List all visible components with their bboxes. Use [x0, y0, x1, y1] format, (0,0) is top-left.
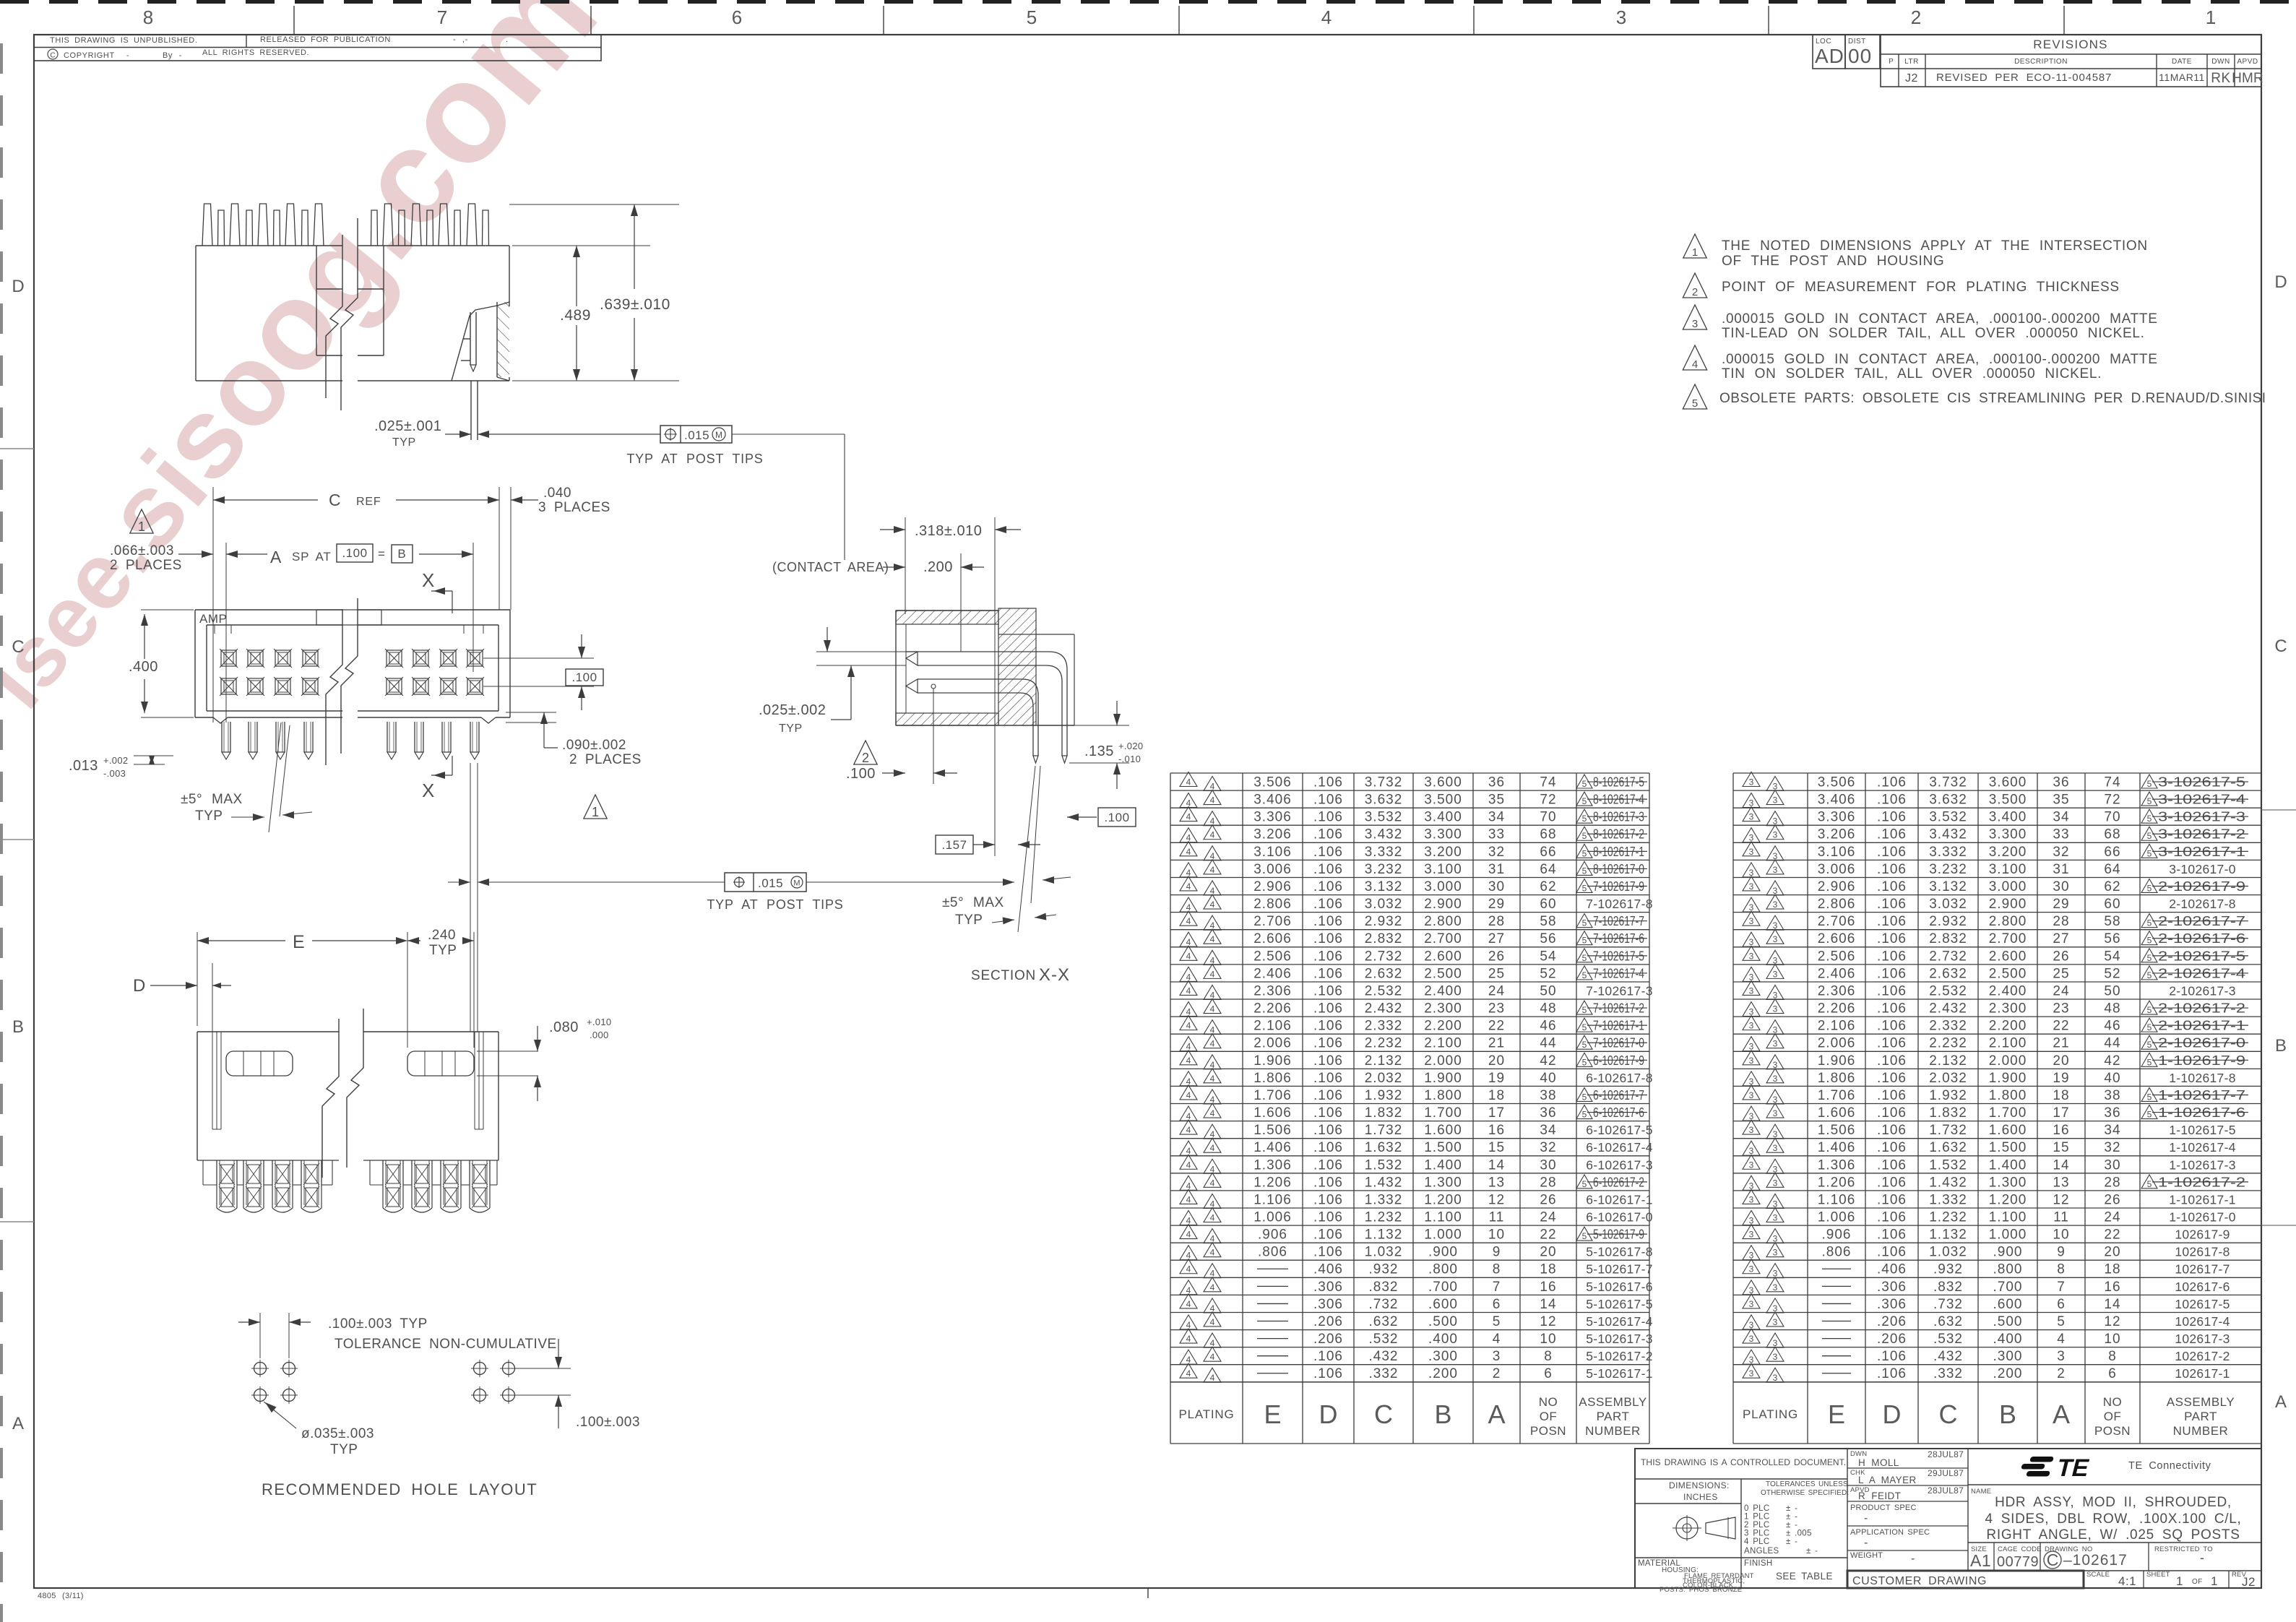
svg-text:C: C — [1939, 1399, 1958, 1429]
svg-text:POSN: POSN — [1530, 1424, 1566, 1438]
svg-text:5: 5 — [2147, 1022, 2152, 1032]
svg-text:1.806: 1.806 — [1253, 1071, 1292, 1086]
svg-text:RIGHT ANGLE, W/ .025 SQ POSTS: RIGHT ANGLE, W/ .025 SQ POSTS — [1986, 1527, 2240, 1543]
svg-text:3: 3 — [1773, 865, 1778, 875]
svg-text:.106: .106 — [1313, 1366, 1343, 1381]
svg-text:DIMENSIONS:: DIMENSIONS: — [1669, 1480, 1730, 1491]
svg-text:COPYRIGHT: COPYRIGHT — [64, 51, 115, 60]
svg-text:C: C — [2274, 637, 2287, 656]
svg-text:3: 3 — [1773, 795, 1778, 806]
svg-text:4: 4 — [1321, 7, 1332, 28]
svg-text:.906: .906 — [1822, 1228, 1852, 1243]
svg-text:.106: .106 — [1313, 1105, 1343, 1121]
svg-text:32: 32 — [2104, 1140, 2120, 1155]
svg-text:2: 2 — [2057, 1366, 2066, 1381]
svg-text:26: 26 — [1540, 1192, 1556, 1207]
svg-text:5: 5 — [1582, 1110, 1587, 1120]
svg-text:OTHERWISE SPECIFIED:: OTHERWISE SPECIFIED: — [1761, 1489, 1849, 1497]
svg-text:3: 3 — [1493, 1349, 1501, 1364]
svg-text:2 PLACES: 2 PLACES — [110, 558, 182, 573]
svg-text:2.206: 2.206 — [1818, 1001, 1856, 1017]
svg-text:J2: J2 — [2242, 1575, 2256, 1589]
svg-text:-: - — [1864, 1537, 1868, 1549]
svg-text:4: 4 — [1210, 1074, 1215, 1084]
svg-text:.106: .106 — [1313, 1175, 1343, 1190]
svg-text:1.200: 1.200 — [1424, 1192, 1462, 1207]
svg-text:102617-9: 102617-9 — [2175, 1228, 2230, 1242]
svg-text:OF: OF — [2104, 1410, 2122, 1423]
svg-text:2.132: 2.132 — [1365, 1053, 1403, 1069]
svg-text:3: 3 — [1749, 777, 1754, 788]
svg-text:4: 4 — [1210, 1178, 1215, 1188]
svg-text:.100±.003 TYP: .100±.003 TYP — [328, 1316, 428, 1332]
svg-text:4: 4 — [1186, 1160, 1191, 1170]
svg-text:.106: .106 — [1313, 1123, 1343, 1138]
svg-text:27: 27 — [2053, 931, 2069, 946]
svg-text:20: 20 — [2053, 1053, 2069, 1069]
svg-text:.332: .332 — [1369, 1366, 1399, 1381]
svg-text:2.832: 2.832 — [1929, 931, 1967, 946]
svg-text:3: 3 — [1749, 951, 1754, 961]
svg-text:2: 2 — [1493, 1366, 1501, 1381]
svg-text:5: 5 — [1582, 796, 1587, 806]
svg-text:5: 5 — [1582, 779, 1587, 789]
svg-text:5: 5 — [2147, 796, 2152, 806]
svg-text:3: 3 — [1749, 1125, 1754, 1135]
svg-text:MAX: MAX — [973, 895, 1004, 910]
svg-text:3.732: 3.732 — [1365, 775, 1403, 790]
svg-text:1.000: 1.000 — [1989, 1228, 2027, 1243]
svg-text:3.500: 3.500 — [1989, 793, 2027, 808]
svg-text:2.606: 2.606 — [1253, 931, 1292, 946]
svg-text:6-102617-8: 6-102617-8 — [1586, 1071, 1653, 1085]
svg-text:2.200: 2.200 — [1424, 1019, 1462, 1034]
svg-text:-: - — [1864, 1512, 1868, 1524]
svg-text:.106: .106 — [1313, 1140, 1343, 1155]
svg-text:- ,-: - ,- — [453, 35, 468, 44]
svg-text:102617-3: 102617-3 — [2175, 1332, 2230, 1346]
svg-text:.806: .806 — [1258, 1245, 1287, 1260]
svg-text:68: 68 — [2104, 827, 2120, 842]
svg-text:2.306: 2.306 — [1818, 983, 1856, 998]
svg-text:.106: .106 — [1877, 1192, 1907, 1207]
svg-text:1.900: 1.900 — [1424, 1071, 1462, 1086]
svg-text:4: 4 — [1692, 358, 1698, 371]
svg-text:5: 5 — [2147, 1092, 2152, 1102]
svg-text:14: 14 — [1540, 1297, 1556, 1312]
svg-text:00779: 00779 — [1997, 1554, 2039, 1570]
svg-text:.013: .013 — [69, 758, 98, 774]
svg-text:3.006: 3.006 — [1253, 862, 1292, 877]
svg-text:30: 30 — [1540, 1157, 1556, 1173]
svg-text:.639±.010: .639±.010 — [600, 296, 670, 313]
svg-text:54: 54 — [1540, 949, 1556, 964]
svg-text:1.306: 1.306 — [1818, 1157, 1856, 1173]
svg-text:4: 4 — [1186, 777, 1191, 788]
svg-text:5: 5 — [2147, 1040, 2152, 1050]
svg-text:50: 50 — [1540, 983, 1556, 998]
svg-text:.700: .700 — [1993, 1280, 2023, 1295]
svg-text:OF: OF — [1540, 1410, 1558, 1423]
svg-text:.040: .040 — [543, 486, 571, 501]
svg-text:44: 44 — [1540, 1036, 1556, 1051]
svg-text:D: D — [1883, 1399, 1902, 1429]
svg-text:SP AT: SP AT — [292, 550, 332, 564]
svg-text:(CONTACT AREA): (CONTACT AREA) — [772, 560, 889, 574]
svg-text:2.700: 2.700 — [1989, 931, 2027, 946]
svg-text:1.406: 1.406 — [1253, 1140, 1292, 1155]
svg-text:.: . — [506, 35, 509, 44]
svg-text:2 PLC: 2 PLC — [1744, 1521, 1769, 1530]
svg-text:13: 13 — [2053, 1175, 2069, 1190]
svg-text:4:1: 4:1 — [2118, 1574, 2136, 1588]
svg-text:11: 11 — [2053, 1210, 2069, 1225]
svg-text:32: 32 — [1540, 1140, 1556, 1155]
svg-text:1-102617-5: 1-102617-5 — [2169, 1123, 2236, 1137]
svg-text:1.106: 1.106 — [1253, 1192, 1292, 1207]
svg-text:1.732: 1.732 — [1929, 1123, 1967, 1138]
svg-text:3.400: 3.400 — [1424, 810, 1462, 825]
svg-text:.106: .106 — [1877, 1140, 1907, 1155]
svg-text:3 PLC: 3 PLC — [1744, 1530, 1769, 1538]
svg-text:3.206: 3.206 — [1253, 827, 1292, 842]
svg-text:4: 4 — [1210, 934, 1215, 944]
svg-text:20: 20 — [2104, 1245, 2120, 1260]
svg-text:-.010: -.010 — [1118, 754, 1141, 764]
svg-text:2.600: 2.600 — [1424, 949, 1462, 964]
svg-text:1.206: 1.206 — [1253, 1175, 1292, 1190]
svg-text:102617-8: 102617-8 — [2175, 1245, 2230, 1259]
svg-text:–102617: –102617 — [2063, 1552, 2128, 1569]
svg-text:TYP: TYP — [779, 722, 803, 735]
svg-text:3.500: 3.500 — [1424, 793, 1462, 808]
svg-text:5: 5 — [1493, 1314, 1501, 1329]
svg-text:36: 36 — [2104, 1105, 2120, 1121]
svg-text:2.506: 2.506 — [1818, 949, 1856, 964]
svg-text:1.432: 1.432 — [1929, 1175, 1967, 1190]
svg-text:+.002: +.002 — [103, 755, 128, 766]
svg-text:.432: .432 — [1933, 1349, 1963, 1364]
svg-text:THIS DRAWING IS A CONTROLLED D: THIS DRAWING IS A CONTROLLED DOCUMENT. — [1641, 1457, 1846, 1467]
svg-text:58: 58 — [2104, 914, 2120, 929]
svg-text:6: 6 — [1544, 1366, 1553, 1381]
svg-text:11: 11 — [1489, 1210, 1505, 1225]
svg-text:30: 30 — [2104, 1157, 2120, 1173]
svg-text:5: 5 — [2147, 970, 2152, 980]
svg-text:TYP: TYP — [392, 436, 416, 449]
svg-text:1: 1 — [2176, 1574, 2183, 1588]
svg-text:12: 12 — [2053, 1192, 2069, 1207]
svg-text:.432: .432 — [1369, 1349, 1399, 1364]
svg-text:3: 3 — [1749, 1368, 1754, 1379]
svg-text:1.200: 1.200 — [1989, 1192, 2027, 1207]
svg-text:.106: .106 — [1877, 914, 1907, 929]
svg-text:56: 56 — [2104, 931, 2120, 946]
svg-text:4: 4 — [1210, 1282, 1215, 1293]
svg-text:1: 1 — [138, 519, 145, 534]
svg-text:2.100: 2.100 — [1989, 1036, 2027, 1051]
svg-text:.100±.003: .100±.003 — [576, 1415, 640, 1430]
svg-text:3: 3 — [1616, 7, 1626, 28]
svg-text:2.232: 2.232 — [1365, 1036, 1403, 1051]
svg-text:28: 28 — [2053, 914, 2069, 929]
svg-text:.100: .100 — [846, 766, 876, 782]
svg-text:2-102617-8: 2-102617-8 — [2169, 897, 2236, 911]
svg-text:1-102617-1: 1-102617-1 — [2169, 1192, 2236, 1207]
svg-text:22: 22 — [1540, 1228, 1556, 1243]
svg-text:B: B — [12, 1017, 24, 1037]
svg-text:±5°: ±5° — [942, 895, 964, 910]
svg-text:OBSOLETE PARTS: OBSOLETE CIS S: OBSOLETE PARTS: OBSOLETE CIS STREAMLININ… — [1719, 391, 2266, 406]
svg-text:.600: .600 — [1428, 1297, 1458, 1312]
svg-text:.106: .106 — [1877, 1071, 1907, 1086]
svg-text:1-102617-3: 1-102617-3 — [2169, 1157, 2236, 1172]
svg-text:3.232: 3.232 — [1365, 862, 1403, 877]
svg-text:C: C — [329, 491, 341, 509]
svg-text:1.306: 1.306 — [1253, 1157, 1292, 1173]
svg-text:.080: .080 — [549, 1019, 579, 1035]
svg-text:6: 6 — [2108, 1366, 2117, 1381]
svg-text:5-102617-8: 5-102617-8 — [1586, 1245, 1653, 1259]
svg-text:3.006: 3.006 — [1818, 862, 1856, 877]
svg-text:.106: .106 — [1313, 1349, 1343, 1364]
svg-text:3.206: 3.206 — [1818, 827, 1856, 842]
svg-text:2.200: 2.200 — [1989, 1019, 2027, 1034]
svg-text:.106: .106 — [1313, 879, 1343, 894]
svg-text:15: 15 — [1488, 1140, 1505, 1155]
svg-text:± -: ± - — [1786, 1513, 1797, 1522]
svg-text:3: 3 — [1773, 1373, 1778, 1383]
svg-text:L A MAYER: L A MAYER — [1858, 1475, 1917, 1485]
svg-text:ø.035±.003: ø.035±.003 — [301, 1426, 374, 1441]
svg-text:21: 21 — [2053, 1036, 2069, 1051]
svg-text:.532: .532 — [1369, 1332, 1399, 1347]
svg-text:102617-2: 102617-2 — [2175, 1349, 2230, 1363]
svg-text:58: 58 — [1540, 914, 1556, 929]
svg-text:4: 4 — [1210, 1108, 1215, 1118]
svg-text:5: 5 — [1582, 1022, 1587, 1032]
svg-text:1.100: 1.100 — [1989, 1210, 2027, 1225]
svg-text:1.932: 1.932 — [1365, 1088, 1403, 1103]
svg-text:DATE: DATE — [2172, 58, 2192, 66]
svg-text:1.732: 1.732 — [1365, 1123, 1403, 1138]
svg-text:.106: .106 — [1877, 1245, 1907, 1260]
svg-text:17: 17 — [2053, 1105, 2069, 1121]
svg-text:3: 3 — [1773, 1074, 1778, 1084]
svg-text:102617-1: 102617-1 — [2175, 1366, 2230, 1381]
svg-text:38: 38 — [2104, 1088, 2120, 1103]
svg-text:3: 3 — [1749, 1299, 1754, 1309]
svg-text:36: 36 — [1540, 1105, 1556, 1121]
svg-text:1.632: 1.632 — [1929, 1140, 1967, 1155]
svg-text:.632: .632 — [1933, 1314, 1963, 1329]
svg-text:By -: By - — [163, 51, 182, 60]
svg-text:1.332: 1.332 — [1365, 1192, 1403, 1207]
svg-text:4805 (3/11): 4805 (3/11) — [38, 1592, 84, 1600]
svg-text:.306: .306 — [1877, 1297, 1907, 1312]
svg-text:B: B — [1999, 1399, 2016, 1429]
svg-text:.832: .832 — [1369, 1280, 1399, 1295]
svg-text:34: 34 — [1488, 810, 1505, 825]
svg-text:1.900: 1.900 — [1989, 1071, 2027, 1086]
svg-text:.106: .106 — [1313, 810, 1343, 825]
svg-text:2.000: 2.000 — [1424, 1053, 1462, 1069]
svg-text:24: 24 — [2053, 983, 2069, 998]
svg-text:.106: .106 — [1313, 1036, 1343, 1051]
svg-text:2.000: 2.000 — [1989, 1053, 2027, 1069]
svg-text:14: 14 — [2053, 1157, 2069, 1173]
svg-text:3: 3 — [1749, 1056, 1754, 1066]
svg-text:+.020: +.020 — [1118, 741, 1143, 751]
svg-text:.906: .906 — [1258, 1228, 1287, 1243]
svg-text:2.206: 2.206 — [1253, 1001, 1292, 1017]
svg-text:3.506: 3.506 — [1818, 775, 1856, 790]
svg-text:.900: .900 — [1993, 1245, 2023, 1260]
svg-text:.100: .100 — [1104, 811, 1129, 824]
svg-text:4: 4 — [1186, 916, 1191, 926]
svg-text:25: 25 — [1488, 966, 1505, 981]
svg-text:1-102617-4: 1-102617-4 — [2169, 1140, 2236, 1155]
svg-text:.106: .106 — [1313, 1245, 1343, 1260]
svg-text:.400: .400 — [1428, 1332, 1458, 1347]
svg-text:.106: .106 — [1313, 793, 1343, 808]
svg-text:29: 29 — [2053, 897, 2069, 912]
svg-text:2.132: 2.132 — [1929, 1053, 1967, 1069]
svg-text:8: 8 — [2108, 1349, 2117, 1364]
svg-text:B: B — [1434, 1399, 1451, 1429]
svg-text:M: M — [715, 430, 722, 440]
svg-text:3: 3 — [1773, 934, 1778, 944]
svg-text:2.706: 2.706 — [1818, 914, 1856, 929]
svg-text:52: 52 — [2104, 966, 2120, 981]
svg-text:4: 4 — [1186, 1056, 1191, 1066]
svg-text:.106: .106 — [1313, 1001, 1343, 1017]
svg-text:.000015 GOLD IN CONTACT AREA,: .000015 GOLD IN CONTACT AREA, .000100-.0… — [1722, 311, 2158, 327]
svg-text:1.800: 1.800 — [1424, 1088, 1462, 1103]
svg-text:.306: .306 — [1877, 1280, 1907, 1295]
svg-text:102617-4: 102617-4 — [2175, 1314, 2230, 1329]
svg-text:32: 32 — [1488, 845, 1505, 860]
svg-text:1: 1 — [1692, 246, 1698, 259]
svg-text:.200: .200 — [1993, 1366, 2023, 1381]
svg-text:0 PLC: 0 PLC — [1744, 1504, 1769, 1513]
svg-text:2.006: 2.006 — [1253, 1036, 1292, 1051]
svg-text:19: 19 — [2053, 1071, 2069, 1086]
svg-text:5: 5 — [2147, 1179, 2152, 1189]
svg-text:2.806: 2.806 — [1818, 897, 1856, 912]
svg-text:X-X: X-X — [1039, 965, 1070, 985]
svg-text:REVISIONS: REVISIONS — [2033, 38, 2107, 51]
svg-text:3.000: 3.000 — [1424, 879, 1462, 894]
svg-text:3: 3 — [1773, 1039, 1778, 1049]
svg-text:ALL RIGHTS RESERVED.: ALL RIGHTS RESERVED. — [202, 48, 309, 57]
svg-text:3: 3 — [1773, 1108, 1778, 1118]
svg-text:-: - — [1911, 1553, 1915, 1565]
svg-text:3.406: 3.406 — [1818, 793, 1856, 808]
svg-text:RK: RK — [2211, 71, 2230, 86]
svg-text:35: 35 — [1488, 793, 1505, 808]
svg-text:3: 3 — [1749, 1021, 1754, 1031]
svg-text:3.332: 3.332 — [1929, 845, 1967, 860]
svg-text:.206: .206 — [1313, 1332, 1343, 1347]
svg-text:SCALE: SCALE — [2086, 1571, 2110, 1579]
svg-text:2.800: 2.800 — [1989, 914, 2027, 929]
svg-text:31: 31 — [1488, 862, 1505, 877]
svg-text:1.606: 1.606 — [1818, 1105, 1856, 1121]
svg-text:4: 4 — [1210, 830, 1215, 840]
svg-text:7-102617-3: 7-102617-3 — [1586, 983, 1653, 998]
svg-text:6: 6 — [732, 7, 742, 28]
svg-text:3: 3 — [1749, 1334, 1754, 1344]
svg-text:.100: .100 — [342, 546, 367, 560]
svg-text:1.906: 1.906 — [1818, 1053, 1856, 1069]
svg-text:4 PLC: 4 PLC — [1744, 1537, 1769, 1546]
svg-text:74: 74 — [2104, 775, 2120, 790]
svg-text:2.232: 2.232 — [1929, 1036, 1967, 1051]
svg-text:3.632: 3.632 — [1929, 793, 1967, 808]
svg-text:1.332: 1.332 — [1929, 1192, 1967, 1207]
svg-text:.106: .106 — [1313, 931, 1343, 946]
svg-text:5-102617-6: 5-102617-6 — [1586, 1280, 1653, 1294]
svg-text:.106: .106 — [1877, 827, 1907, 842]
svg-text:P: P — [1889, 58, 1894, 66]
svg-text:1.632: 1.632 — [1365, 1140, 1403, 1155]
svg-text:1.232: 1.232 — [1365, 1210, 1403, 1225]
svg-text:4: 4 — [1493, 1332, 1501, 1347]
svg-text:INCHES: INCHES — [1683, 1492, 1718, 1502]
svg-text:3: 3 — [1749, 1264, 1754, 1274]
svg-text:2.332: 2.332 — [1365, 1019, 1403, 1034]
svg-text:2.306: 2.306 — [1253, 983, 1292, 998]
svg-text:PLATING: PLATING — [1178, 1407, 1234, 1421]
svg-text:4: 4 — [1186, 881, 1191, 892]
svg-text:5-102617-5: 5-102617-5 — [1586, 1297, 1653, 1311]
svg-text:2.432: 2.432 — [1365, 1001, 1403, 1017]
svg-text:.106: .106 — [1313, 862, 1343, 877]
svg-text:4: 4 — [1210, 1373, 1215, 1383]
svg-text:5: 5 — [1582, 1005, 1587, 1015]
svg-text:3: 3 — [1773, 1282, 1778, 1293]
svg-text:.066±.003: .066±.003 — [110, 543, 174, 558]
svg-text:1: 1 — [2211, 1574, 2218, 1588]
svg-text:TYP AT POST TIPS: TYP AT POST TIPS — [626, 452, 763, 466]
svg-text:±5°: ±5° — [181, 792, 202, 807]
svg-text:.806: .806 — [1822, 1245, 1852, 1260]
svg-text:3: 3 — [1773, 1213, 1778, 1223]
svg-text:3: 3 — [1749, 1230, 1754, 1240]
svg-text:± -: ± - — [1786, 1537, 1797, 1546]
svg-text:3.732: 3.732 — [1929, 775, 1967, 790]
svg-text:1.500: 1.500 — [1989, 1140, 2027, 1155]
svg-text:22: 22 — [2053, 1019, 2069, 1034]
svg-text:TOLERANCES UNLESS: TOLERANCES UNLESS — [1766, 1480, 1848, 1488]
svg-text:.318±.010: .318±.010 — [915, 523, 982, 539]
svg-text:C: C — [2047, 1550, 2059, 1569]
svg-text:3: 3 — [1749, 985, 1754, 996]
svg-text:24: 24 — [1540, 1210, 1556, 1225]
svg-text:36: 36 — [1488, 775, 1505, 790]
svg-text:38: 38 — [1540, 1088, 1556, 1103]
svg-text:5: 5 — [2147, 848, 2152, 858]
svg-text:42: 42 — [2104, 1053, 2120, 1069]
svg-text:17: 17 — [1488, 1105, 1505, 1121]
svg-text:29: 29 — [1488, 897, 1505, 912]
svg-text:3.406: 3.406 — [1253, 793, 1292, 808]
svg-text:2.632: 2.632 — [1365, 966, 1403, 981]
svg-text:APVD: APVD — [2237, 58, 2258, 66]
svg-text:3: 3 — [1773, 1143, 1778, 1153]
svg-text:2.900: 2.900 — [1989, 897, 2027, 912]
